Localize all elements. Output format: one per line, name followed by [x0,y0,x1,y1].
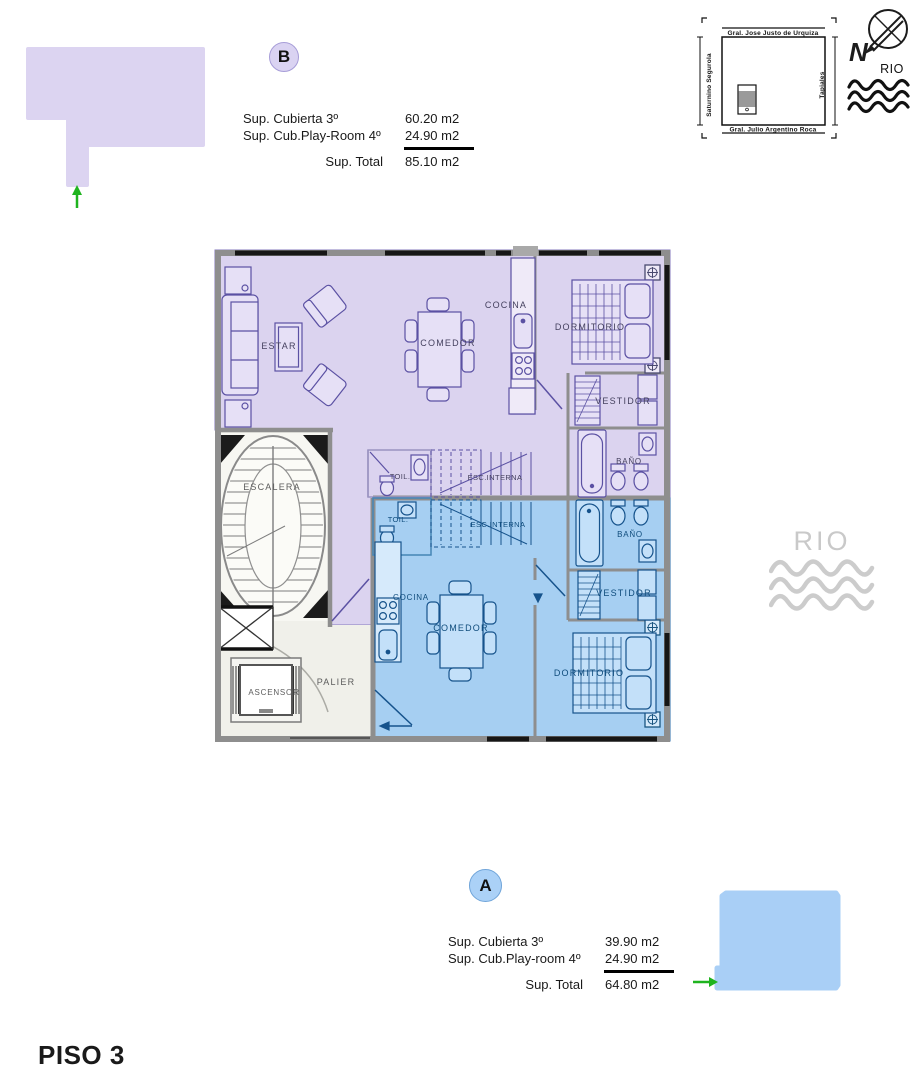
entry-arrow-right-icon [693,977,718,987]
unit-a-total-value: 64.80 m2 [605,976,680,993]
room-label-comedor-a: COMEDOR [433,623,488,633]
side-table [225,400,251,427]
street-bottom-label: Gral. Julio Argentino Roca [730,127,817,134]
room-label-esc-interna-a: ESC.INTERNA [471,520,526,529]
room-label-ascensor: ASCENSOR [248,688,299,697]
bidet [634,500,648,525]
sum-divider [404,147,474,150]
room-label-bano-b: BAÑO [616,457,642,466]
room-label-estar: ESTAR [261,341,296,351]
keyplan-unit-b [20,40,220,215]
room-label-esc-interna-b: ESC.INTERNA [468,473,523,482]
bathtub [578,430,606,497]
unit-b-row1-label: Sup. Cubierta 3º [243,110,405,127]
unit-b-row1-value: 60.20 m2 [405,110,480,127]
rio-watermark-waves-icon [769,557,875,611]
keyplan-b-shape [28,49,203,185]
duct-shaft [219,607,273,649]
room-label-comedor-b: COMEDOR [420,338,475,348]
unit-a-row1-label: Sup. Cubierta 3º [448,933,605,950]
unit-a-row1-value: 39.90 m2 [605,933,680,950]
room-label-cocina-b: COCINA [485,300,527,310]
sum-divider [604,970,674,973]
kitchen-counter [375,542,401,662]
unit-b-row2-value: 24.90 m2 [405,127,480,144]
unit-b-summary: Sup. Cubierta 3º 60.20 m2 Sup. Cub.Play-… [243,110,483,170]
street-top-label: Gral. Jose Justo de Urquiza [727,30,818,37]
river-waves-icon [849,81,908,112]
room-label-toil-b: TOIL. [390,472,411,481]
compass-rio-block: N RIO [845,5,916,120]
vent-tab [513,246,538,256]
street-right-label: Tapiales [819,71,826,98]
side-table [225,267,251,294]
bidet [634,464,648,490]
floor-plan-sheet: B Sup. Cubierta 3º 60.20 m2 Sup. Cub.Pla… [0,0,916,1080]
bathtub [576,500,603,566]
unit-b-row2-label: Sup. Cub.Play-Room 4º [243,127,405,144]
toilet [611,464,625,490]
unit-a-summary: Sup. Cubierta 3º 39.90 m2 Sup. Cub.Play-… [448,933,683,993]
kitchen-counter [509,258,535,414]
room-label-bano-a: BAÑO [617,530,643,539]
rio-watermark-label: RIO [793,526,850,557]
unit-b-total-label: Sup. Total [243,153,405,170]
sink [639,540,656,562]
unit-b-total-value: 85.10 m2 [405,153,480,170]
rio-watermark: RIO [766,526,878,611]
compass-icon: N [849,10,907,67]
room-label-vestidor-a: VESTIDOR [596,588,652,598]
room-label-cocina-a: COCINA [393,593,429,602]
room-label-palier: PALIER [317,677,356,687]
unit-b-badge: B [269,42,299,72]
keyplan-unit-a [690,868,850,998]
entry-arrow-up-icon [72,185,82,208]
unit-a-row2-value: 24.90 m2 [605,950,680,967]
room-label-dormitorio-b: DORMITORIO [555,322,625,332]
room-label-escalera: ESCALERA [243,482,301,492]
street-bottom-bar: Gral. Julio Argentino Roca [722,127,825,134]
floor-title: PISO 3 [38,1040,125,1071]
room-label-dormitorio-a: DORMITORIO [554,668,624,678]
keyplan-a-shape [717,893,838,988]
room-label-toil-a: TOIL. [388,515,409,524]
site-location-map: Gral. Jose Justo de Urquiza Gral. Julio … [693,12,845,144]
unit-a-badge-label: A [479,876,491,896]
building-footprint [738,85,756,114]
floor-plan-drawing: ESTAR COMEDOR COCINA DORMITORIO VESTIDOR… [215,250,670,742]
unit-b-badge-label: B [278,47,290,67]
room-label-vestidor-b: VESTIDOR [595,396,651,406]
toilet [611,500,625,525]
unit-a-badge: A [469,869,502,902]
unit-a-total-label: Sup. Total [448,976,605,993]
street-top-bar: Gral. Jose Justo de Urquiza [722,28,825,37]
rio-label-small: RIO [880,62,904,76]
sofa [222,295,258,395]
street-left-label: Saturnino Segurola [706,53,713,117]
compass-north-label: N [849,37,869,67]
sink [639,433,656,455]
unit-a-row2-label: Sup. Cub.Play-room 4º [448,950,605,967]
